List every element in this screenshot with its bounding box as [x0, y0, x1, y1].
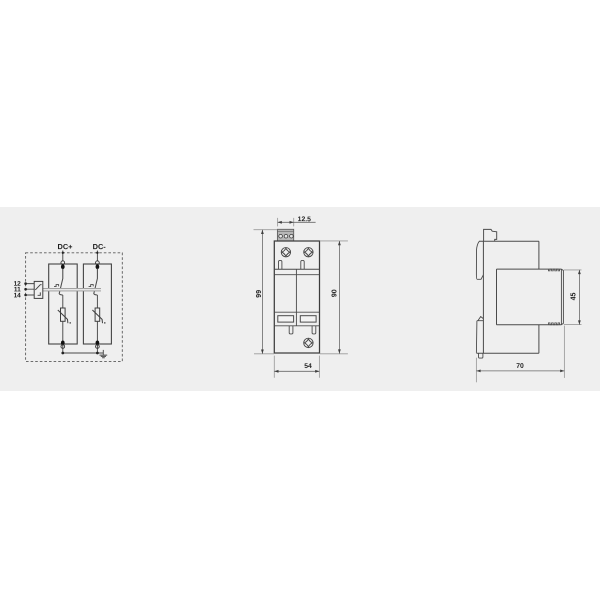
svg-text:14: 14 — [14, 292, 22, 299]
svg-text:45: 45 — [571, 293, 578, 301]
svg-text:DC-: DC- — [93, 242, 107, 251]
svg-text:99: 99 — [256, 290, 263, 298]
svg-text:12.5: 12.5 — [298, 216, 311, 223]
svg-text:70: 70 — [516, 363, 524, 370]
svg-text:54: 54 — [304, 363, 312, 370]
svg-text:DC+: DC+ — [57, 242, 73, 251]
svg-text:90: 90 — [332, 289, 339, 297]
